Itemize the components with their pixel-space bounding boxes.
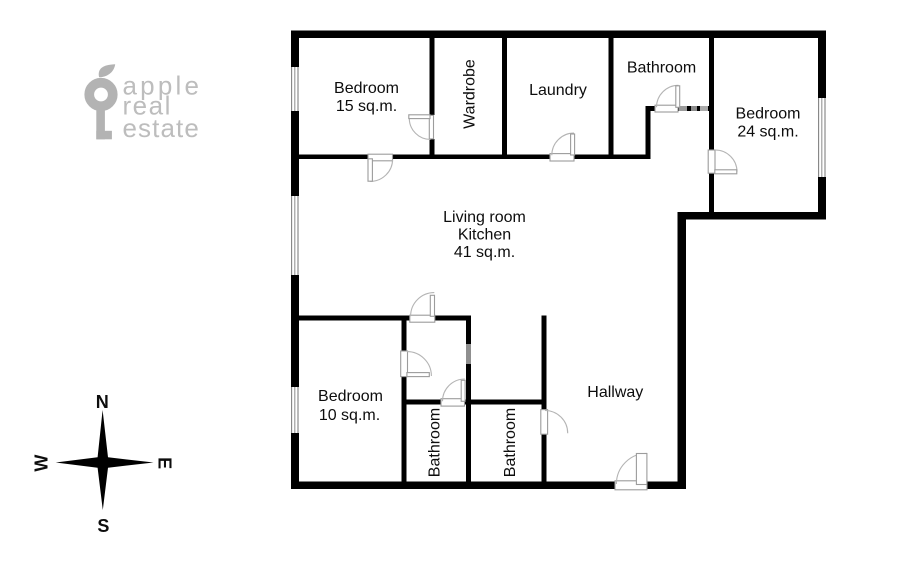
svg-text:Bedroom: Bedroom [736,106,801,123]
svg-text:N: N [96,392,109,412]
svg-text:Bathroom: Bathroom [627,60,696,77]
svg-text:10 sq.m.: 10 sq.m. [319,407,380,424]
svg-text:S: S [97,516,109,536]
svg-text:24 sq.m.: 24 sq.m. [737,124,798,141]
svg-text:Living room: Living room [443,209,526,226]
svg-text:Wardrobe: Wardrobe [462,59,479,129]
svg-text:E: E [155,457,175,469]
svg-text:Laundry: Laundry [529,82,587,99]
svg-text:estate: estate [123,113,200,143]
svg-text:Kitchen: Kitchen [458,227,511,244]
svg-text:Bedroom: Bedroom [334,80,399,97]
svg-text:Bathroom: Bathroom [427,408,444,477]
svg-text:Hallway: Hallway [587,384,643,401]
svg-text:Bathroom: Bathroom [502,408,519,477]
svg-text:W: W [32,455,52,472]
svg-text:41 sq.m.: 41 sq.m. [454,244,515,261]
svg-text:Bedroom: Bedroom [318,388,383,405]
svg-text:15 sq.m.: 15 sq.m. [336,98,397,115]
